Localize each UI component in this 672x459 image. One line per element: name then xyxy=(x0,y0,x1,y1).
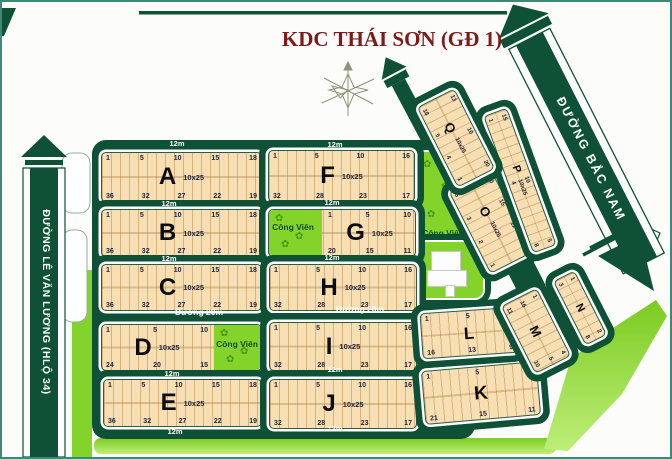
block-letter: B xyxy=(159,221,176,245)
road-label-12m: 12m xyxy=(163,140,191,148)
block-G: 1510201511G10x25✿✿✿ xyxy=(268,209,416,257)
flower-icon: ✿ xyxy=(427,210,435,220)
road-label-12m: 12m xyxy=(321,366,349,374)
road-label-12m: 12m xyxy=(318,199,346,207)
block-E: 151015183632272219E10x25 xyxy=(103,379,262,427)
map-title: KDC THÁI SƠN (GĐ 1) xyxy=(242,27,542,52)
subdivision-map: ✿ ✿ ✿ 151015183632272219A10x251510151836… xyxy=(0,0,672,459)
road-label-12m: 12m xyxy=(161,428,189,436)
lot-dimension: 10x25 xyxy=(342,172,363,181)
park-building-lot xyxy=(417,242,483,298)
lot-dimension: 10x25 xyxy=(159,343,180,352)
flower-icon: ✿ xyxy=(226,355,234,365)
block-letter: L xyxy=(463,324,475,342)
block-K: 1510211511K xyxy=(421,361,541,425)
block-letter: H xyxy=(320,276,337,300)
park-in-block-G: ✿✿✿ xyxy=(269,210,322,256)
road-label-12m: 12m xyxy=(158,370,186,378)
road-label-20m: Đường 20m xyxy=(164,308,234,317)
flower-icon: ✿ xyxy=(295,232,303,242)
lot-dimension: 10x25 xyxy=(372,229,393,238)
road-label-12m: 12m xyxy=(318,254,346,262)
flower-icon: ✿ xyxy=(441,182,449,192)
lot-dimension: 10x25 xyxy=(183,173,204,182)
lot-dimension: 10x25 xyxy=(183,283,204,292)
block-C: 151015183632272219C10x25 xyxy=(101,264,262,311)
building-footprint xyxy=(445,285,455,297)
flower-icon: ✿ xyxy=(281,240,289,250)
block-letter: N xyxy=(573,302,586,314)
road-label-20m: Đường 20m xyxy=(325,305,395,314)
lot-dimension: 10x25 xyxy=(339,342,360,351)
block-letter: O xyxy=(478,204,494,219)
median-islands xyxy=(62,153,90,322)
park-label: Công Viên xyxy=(265,223,321,232)
road-label-12m: 12m xyxy=(155,255,183,263)
road-label-12m: 12m xyxy=(321,141,349,149)
block-letter: F xyxy=(320,164,335,188)
block-letter: J xyxy=(322,392,335,416)
block-letter: C xyxy=(159,276,176,300)
block-J: 15101632282317J10x25 xyxy=(269,379,417,429)
lot-dimension: 10x25 xyxy=(345,283,366,292)
lot-dimension: 10x25 xyxy=(183,229,204,238)
lot-dimension: 10x25 xyxy=(488,221,501,239)
park-label: Công Viên xyxy=(209,340,265,349)
park-label: Công Viên xyxy=(415,229,471,238)
road-label-le-van-luong: ĐƯỜNG LÊ VĂN LƯƠNG (HLỘ 34) xyxy=(36,152,52,452)
block-letter: A xyxy=(159,165,176,189)
block-letter: E xyxy=(161,391,177,415)
lot-dimension: 10x25 xyxy=(184,399,205,408)
road-label-12m: 12m xyxy=(155,200,183,208)
block-letter: M xyxy=(528,323,545,339)
compass-rose-icon xyxy=(322,62,374,116)
flower-icon: ✿ xyxy=(423,160,431,170)
block-letter: I xyxy=(326,335,333,359)
block-A: 151015183632272219A10x25 xyxy=(101,152,262,202)
block-L: 15816139L xyxy=(420,307,519,360)
block-letter: D xyxy=(134,336,151,360)
lot-dimension: 10x25 xyxy=(343,400,364,409)
block-B: 151015183632272219B10x25 xyxy=(101,209,262,257)
road-label-12m: 12m xyxy=(321,425,349,433)
block-F: 15101632282317F10x25 xyxy=(268,150,415,202)
block-letter: K xyxy=(473,383,488,403)
lot-dimension: 10x25 xyxy=(453,137,466,155)
flower-icon: ✿ xyxy=(220,329,228,339)
block-letter: P xyxy=(510,164,523,175)
block-I: 15101632282317I10x25 xyxy=(269,322,417,371)
block-letter: G xyxy=(346,221,365,245)
lot-dimension: 10x25 xyxy=(517,178,528,196)
block-letter: Q xyxy=(443,120,459,135)
